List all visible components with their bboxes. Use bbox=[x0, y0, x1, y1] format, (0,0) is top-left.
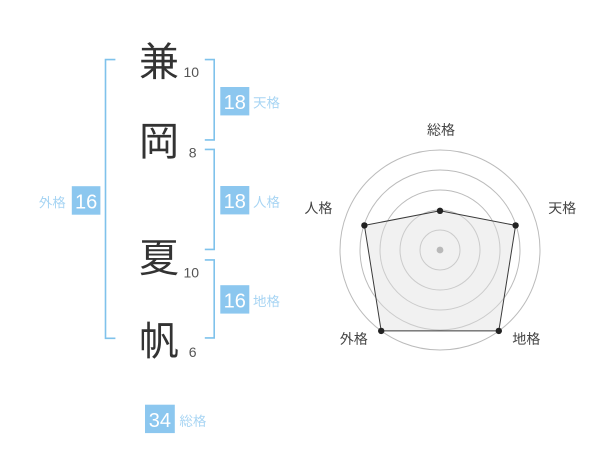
svg-text:18: 18 bbox=[224, 191, 246, 213]
svg-text:10: 10 bbox=[184, 64, 200, 80]
svg-text:8: 8 bbox=[189, 145, 197, 161]
svg-text:18: 18 bbox=[224, 92, 246, 114]
svg-text:6: 6 bbox=[189, 344, 197, 360]
svg-text:10: 10 bbox=[184, 264, 200, 280]
svg-text:16: 16 bbox=[224, 290, 246, 312]
svg-text:16: 16 bbox=[75, 191, 97, 213]
svg-text:34: 34 bbox=[149, 410, 171, 432]
